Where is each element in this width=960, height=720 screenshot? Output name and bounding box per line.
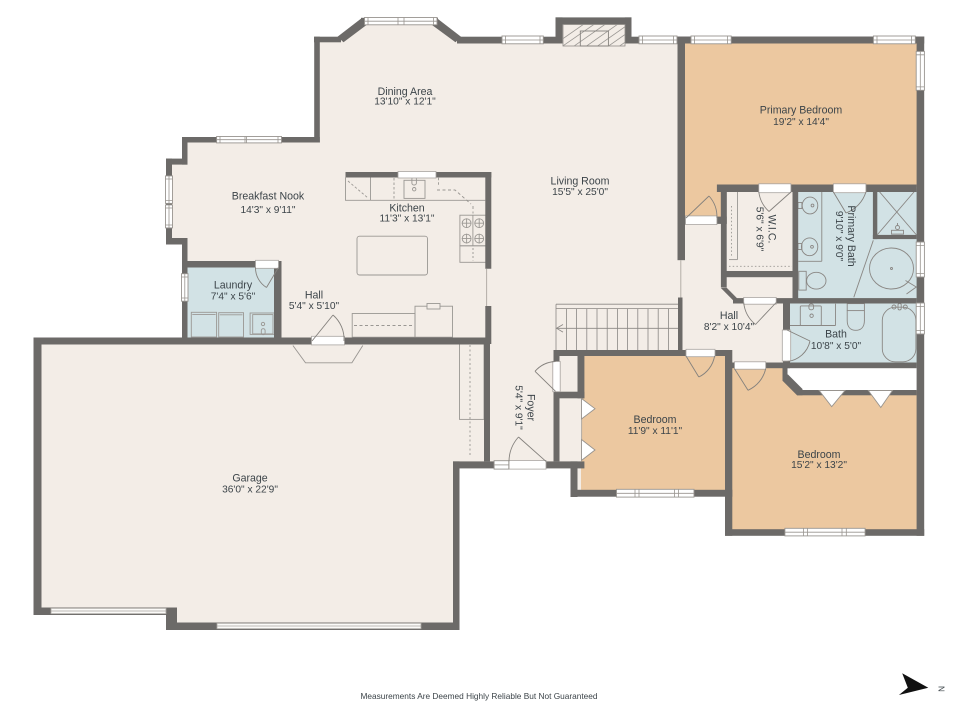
svg-text:Hall: Hall — [305, 290, 323, 302]
svg-text:Foyer: Foyer — [525, 394, 537, 422]
svg-text:5'4" x 9'1": 5'4" x 9'1" — [513, 385, 524, 430]
svg-text:Primary Bath: Primary Bath — [845, 205, 857, 266]
svg-text:5'6" x 6'9": 5'6" x 6'9" — [754, 207, 765, 252]
svg-text:10'8" x 5'0": 10'8" x 5'0" — [811, 341, 862, 352]
svg-text:36'0" x 22'9": 36'0" x 22'9" — [222, 485, 278, 496]
svg-text:Primary Bedroom: Primary Bedroom — [760, 105, 843, 117]
svg-text:11'3" x 13'1": 11'3" x 13'1" — [379, 214, 434, 225]
svg-text:Breakfast Nook: Breakfast Nook — [232, 191, 305, 203]
svg-text:14'3" x 9'11": 14'3" x 9'11" — [240, 205, 295, 216]
svg-text:8'2" x 10'4": 8'2" x 10'4" — [704, 322, 755, 333]
svg-text:11'9" x 11'1": 11'9" x 11'1" — [628, 426, 683, 437]
svg-text:15'5" x 25'0": 15'5" x 25'0" — [552, 187, 608, 198]
svg-text:W.I.C.: W.I.C. — [766, 215, 778, 244]
svg-text:Bath: Bath — [825, 329, 847, 341]
svg-text:13'10" x 12'1": 13'10" x 12'1" — [374, 97, 436, 108]
svg-text:Living Room: Living Room — [551, 176, 610, 188]
svg-text:Bedroom: Bedroom — [634, 414, 677, 426]
svg-text:Garage: Garage — [232, 473, 267, 485]
svg-text:5'4" x 5'10": 5'4" x 5'10" — [289, 301, 340, 312]
svg-text:Laundry: Laundry — [214, 280, 253, 292]
svg-text:Measurements Are Deemed Highly: Measurements Are Deemed Highly Reliable … — [360, 691, 597, 701]
svg-text:19'2" x 14'4": 19'2" x 14'4" — [773, 117, 829, 128]
svg-text:N: N — [937, 686, 946, 692]
svg-text:Hall: Hall — [720, 310, 738, 322]
svg-text:7'4" x 5'6": 7'4" x 5'6" — [211, 292, 256, 303]
svg-text:15'2" x 13'2": 15'2" x 13'2" — [791, 460, 847, 471]
svg-text:9'10" x 9'0": 9'10" x 9'0" — [833, 211, 844, 262]
